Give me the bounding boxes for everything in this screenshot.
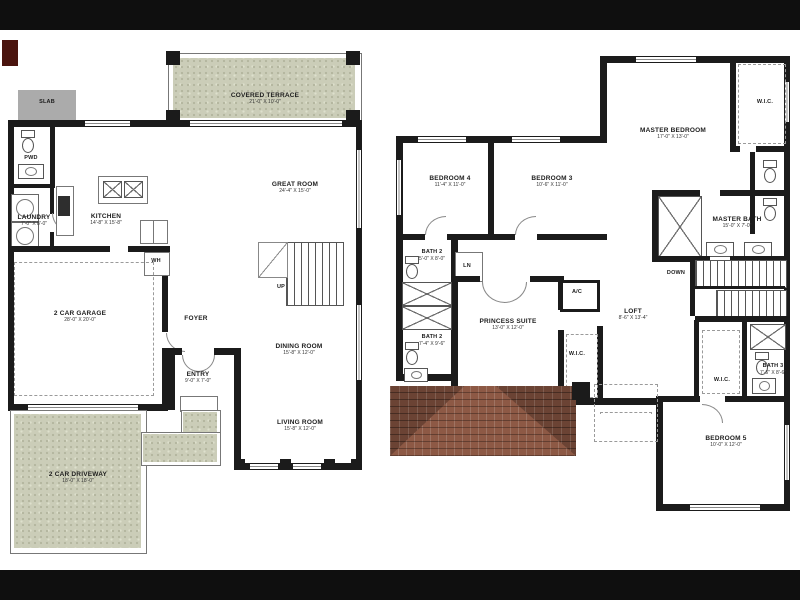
room-label-master-bath: MASTER BATH 15'-0" X 7'-0" (712, 216, 761, 229)
bottom-letterbox-bar (0, 570, 800, 600)
staircase-up (286, 242, 344, 306)
roof-hip-face (390, 386, 576, 456)
window (512, 137, 560, 142)
wall-segment (730, 146, 740, 152)
door-swing (515, 216, 536, 235)
covered-terrace-paving (173, 58, 355, 118)
sink-fixture (18, 164, 44, 179)
room-label-driveway: 2 CAR DRIVEWAY 18'-0" X 18'-0" (49, 471, 107, 484)
wall-segment (488, 136, 494, 240)
staircase-down-lower-run (716, 290, 787, 318)
corner-post (324, 459, 335, 470)
terrace-post (166, 51, 180, 65)
wall-segment (742, 320, 747, 400)
window (190, 121, 342, 126)
wall-segment (537, 234, 607, 240)
toilet-fixture (404, 342, 420, 366)
wall-segment (396, 234, 425, 240)
closet-rod-outline (702, 330, 740, 394)
window (293, 464, 321, 469)
room-label-pwd: PWD (24, 155, 37, 162)
corner-post (280, 459, 291, 470)
room-label-slab: SLAB (39, 99, 55, 106)
room-label-wic-bedroom5: W.I.C. (714, 377, 730, 384)
wall-segment (8, 246, 110, 252)
garage-parking-outline (14, 262, 154, 396)
red-corner-mark (2, 40, 18, 66)
room-label-linen: LN (463, 263, 471, 270)
room-label-ac: A/C (572, 289, 582, 296)
sink-fixture (752, 378, 776, 394)
balcony-line (600, 412, 652, 414)
room-label-dining-room: DINING ROOM 15'-8" X 12'-0" (276, 343, 323, 356)
island-cooktop (124, 181, 143, 198)
room-label-great-room: GREAT ROOM 24'-4" X 15'-0" (272, 181, 318, 194)
room-label-bath3: BATH 3 7'-6" X 8'-6" (760, 363, 786, 376)
roof-shingles (390, 386, 576, 456)
slab-pad (18, 90, 76, 124)
door-swing (425, 216, 446, 235)
sink-fixture (706, 242, 734, 257)
window (357, 305, 361, 380)
shower-fixture (750, 324, 786, 350)
wall-segment (720, 190, 790, 196)
walkway-paving (183, 412, 217, 432)
room-label-kitchen: KITCHEN 14'-8" X 15'-8" (90, 213, 122, 226)
entry-door-swing (198, 355, 215, 372)
wall-segment (451, 276, 480, 282)
stair-rail (695, 286, 785, 289)
master-shower (658, 196, 702, 258)
door-swing (504, 282, 527, 303)
door-swing (702, 404, 723, 423)
floor-plan-canvas: COVERED TERRACE 21'-0" X 10'-0" SLAB PWD… (0, 0, 800, 600)
window (418, 137, 466, 142)
wall-segment (730, 56, 736, 152)
wall-segment (50, 184, 54, 214)
island-sink (103, 181, 122, 198)
window (357, 150, 361, 228)
wall-segment (725, 396, 790, 402)
room-label-bath2-upper: BATH 2 5'-0" X 8'-0" (419, 249, 445, 262)
room-label-bath2-lower: BATH 2 7'-4" X 9'-6" (419, 334, 445, 347)
window (636, 57, 696, 62)
door-swing (482, 282, 505, 303)
fridge-fixture (153, 220, 168, 244)
stair-landing (258, 242, 288, 278)
tub-fixture (402, 282, 452, 306)
room-label-bedroom4: BEDROOM 4 11'-4" X 11'-0" (429, 175, 470, 188)
room-label-garage: 2 CAR GARAGE 28'-0" X 20'-0" (54, 310, 106, 323)
window (397, 160, 401, 215)
stove-fixture (58, 196, 70, 216)
window (250, 464, 278, 469)
wall-segment (756, 146, 790, 152)
window (85, 121, 130, 126)
wall-segment (694, 320, 699, 400)
wall-segment (656, 396, 700, 402)
staircase-down-upper-run (695, 260, 787, 288)
room-label-bedroom5: BEDROOM 5 10'-0" X 12'-0" (705, 435, 746, 448)
room-label-loft: LOFT 8'-6" X 13'-4" (619, 308, 648, 321)
room-label-laundry: LAUNDRY 7'-0" X 8'-0" (18, 214, 51, 227)
ac-closet (560, 280, 600, 312)
room-label-covered-terrace: COVERED TERRACE 21'-0" X 10'-0" (231, 92, 299, 105)
sink-fixture (404, 368, 428, 382)
room-label-princess-suite: PRINCESS SUITE 13'-0" X 12'-0" (480, 318, 537, 331)
terrace-post (346, 51, 360, 65)
window (785, 425, 789, 480)
toilet-fixture (20, 130, 36, 154)
room-label-foyer: FOYER (184, 315, 207, 322)
room-label-wh: WH (151, 258, 161, 265)
top-letterbox-bar (0, 0, 800, 30)
wall-segment (8, 184, 55, 188)
toilet-fixture (404, 256, 420, 280)
wall-segment (600, 56, 607, 142)
walkway-paving (143, 434, 217, 462)
sink-fixture (744, 242, 772, 257)
room-label-bedroom3: BEDROOM 3 10'-6" X 11'-0" (531, 175, 572, 188)
label-stairs-down: DOWN (667, 270, 685, 277)
window (690, 505, 760, 510)
room-label-master-bedroom: MASTER BEDROOM 17'-0" X 13'-0" (640, 127, 706, 140)
room-label-entry: ENTRY 9'-0" X 7'-0" (185, 371, 211, 384)
room-label-wic-master: W.I.C. (757, 99, 773, 106)
label-stairs-up: UP (277, 284, 285, 291)
toilet-fixture (762, 198, 778, 222)
wall-segment (168, 348, 175, 410)
shower-fixture (402, 306, 452, 330)
room-label-wic-princess: W.I.C. (569, 351, 585, 358)
corner-post (351, 459, 362, 470)
wall-segment (234, 348, 241, 466)
wall-segment (50, 120, 55, 186)
room-label-living-room: LIVING ROOM 15'-8" X 12'-0" (277, 419, 323, 432)
entry-door-swing (182, 355, 199, 372)
corner-post (572, 382, 590, 400)
toilet-fixture (762, 160, 778, 184)
